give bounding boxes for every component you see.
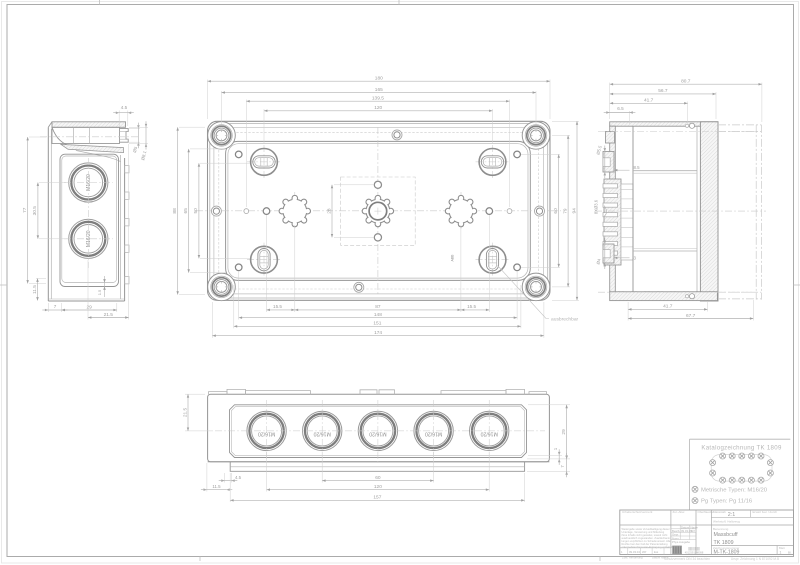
svg-text:Pg Typen: Pg 11/16: Pg Typen: Pg 11/16 bbox=[701, 499, 753, 505]
svg-text:60: 60 bbox=[553, 208, 559, 214]
svg-text:4012591148098: 4012591148098 bbox=[685, 551, 704, 555]
svg-text:28: 28 bbox=[326, 208, 332, 214]
svg-text:Metrische Typen: M16/20: Metrische Typen: M16/20 bbox=[701, 487, 768, 493]
svg-text:4.5: 4.5 bbox=[235, 475, 242, 480]
svg-text:4.5: 4.5 bbox=[121, 105, 128, 110]
svg-text:Katalogzeichnung TK 1809: Katalogzeichnung TK 1809 bbox=[701, 444, 782, 451]
svg-text:Zust. Aenderung: Zust. Aenderung bbox=[622, 555, 643, 559]
svg-text:Oberflaeche: Oberflaeche bbox=[698, 510, 715, 514]
svg-text:1: 1 bbox=[780, 550, 782, 554]
svg-text:09.03.04: 09.03.04 bbox=[629, 550, 640, 554]
svg-text:21.5: 21.5 bbox=[182, 408, 188, 418]
svg-text:Blatt: Blatt bbox=[779, 546, 785, 550]
svg-text:||||||||||||||: |||||||||||||| bbox=[688, 547, 700, 551]
svg-text:21.5: 21.5 bbox=[104, 312, 114, 318]
svg-text:2:1: 2:1 bbox=[728, 512, 736, 518]
svg-text:29: 29 bbox=[87, 304, 93, 310]
svg-text:Massbcuff: Massbcuff bbox=[714, 532, 739, 538]
svg-text:50: 50 bbox=[193, 208, 199, 214]
svg-text:94: 94 bbox=[571, 208, 577, 214]
svg-text:oder Gebrauchsmuster-Eintragun: oder Gebrauchsmuster-Eintragung vorbehal… bbox=[622, 545, 677, 549]
svg-text:65: 65 bbox=[183, 208, 189, 214]
svg-text:Schutzvermerk DIN 34 beachten: Schutzvermerk DIN 34 beachten bbox=[664, 557, 710, 561]
svg-text:11.5: 11.5 bbox=[32, 285, 38, 294]
svg-text:Phys.Ausgabe: Phys.Ausgabe bbox=[672, 540, 690, 544]
svg-text:80.7: 80.7 bbox=[681, 79, 691, 85]
svg-text:148: 148 bbox=[374, 312, 382, 318]
svg-text:30.5: 30.5 bbox=[32, 206, 38, 216]
svg-text:Werkstoff, Halbzeug: Werkstoff, Halbzeug bbox=[713, 520, 740, 524]
svg-text:7: 7 bbox=[54, 304, 57, 309]
svg-text:79: 79 bbox=[562, 208, 568, 214]
svg-text:Urspr. Zeichnung 1 N 871092 M: Urspr. Zeichnung 1 N 871092 M.B bbox=[731, 557, 779, 561]
svg-text:M-TK-1809: M-TK-1809 bbox=[714, 550, 740, 556]
svg-text:8XØ3.6: 8XØ3.6 bbox=[594, 199, 599, 214]
svg-text:Urheberschutzvermerk: Urheberschutzvermerk bbox=[622, 510, 653, 514]
svg-text:180: 180 bbox=[375, 76, 383, 82]
svg-text:120: 120 bbox=[374, 105, 382, 111]
svg-text:11.5: 11.5 bbox=[212, 484, 221, 489]
svg-text:Bl.: Bl. bbox=[788, 550, 792, 554]
svg-text:60: 60 bbox=[375, 475, 381, 481]
svg-text:8.5: 8.5 bbox=[634, 165, 641, 170]
svg-text:41.7: 41.7 bbox=[663, 304, 673, 310]
svg-text:120: 120 bbox=[374, 484, 382, 490]
svg-text:139.5: 139.5 bbox=[372, 96, 384, 102]
svg-text:67.7: 67.7 bbox=[686, 313, 696, 319]
svg-text:ausbrechbar: ausbrechbar bbox=[551, 316, 579, 322]
svg-text:87: 87 bbox=[375, 304, 381, 310]
svg-text:6.5: 6.5 bbox=[617, 106, 624, 111]
svg-text:Massstab: Massstab bbox=[713, 510, 726, 514]
svg-text:151: 151 bbox=[373, 321, 381, 327]
svg-text:165: 165 bbox=[375, 87, 383, 93]
svg-text:Ersatz fuer / durch: Ersatz fuer / durch bbox=[753, 510, 778, 514]
svg-text:157: 157 bbox=[373, 495, 381, 501]
svg-text:77: 77 bbox=[22, 207, 28, 213]
svg-text:Wrf: Wrf bbox=[642, 550, 647, 554]
svg-text:88: 88 bbox=[172, 208, 178, 214]
svg-text:ABB: ABB bbox=[451, 254, 455, 262]
svg-text:Eot: Eot bbox=[654, 550, 658, 554]
svg-text:29: 29 bbox=[561, 429, 567, 435]
svg-text:Zul.-Abw.: Zul.-Abw. bbox=[673, 510, 686, 514]
svg-text:41.7: 41.7 bbox=[644, 98, 654, 104]
svg-text:Benennung: Benennung bbox=[713, 527, 729, 531]
svg-text:174: 174 bbox=[374, 330, 382, 336]
svg-text:56.7: 56.7 bbox=[658, 88, 668, 94]
svg-text:15.5: 15.5 bbox=[273, 304, 282, 309]
svg-text:1.5: 1.5 bbox=[97, 289, 102, 295]
svg-text:15.5: 15.5 bbox=[467, 304, 476, 309]
